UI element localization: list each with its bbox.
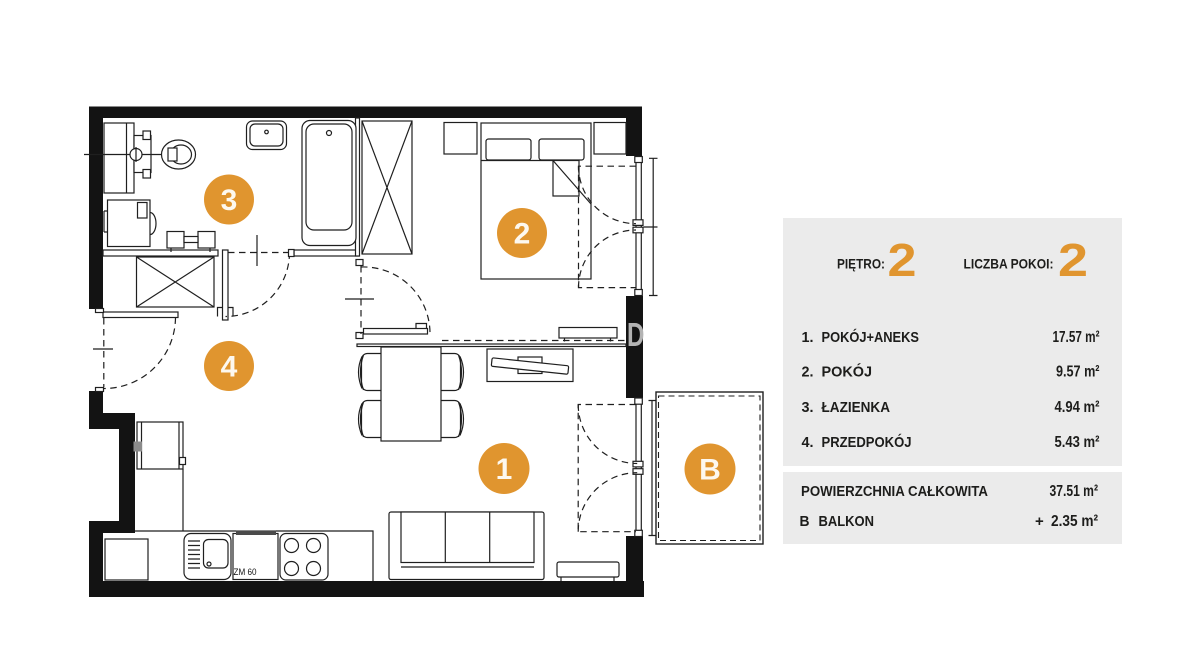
svg-text:PRZEDPOKÓJ: PRZEDPOKÓJ bbox=[822, 433, 912, 451]
svg-text:BALKON: BALKON bbox=[819, 513, 875, 530]
svg-text:4: 4 bbox=[221, 351, 238, 384]
svg-text:37.51 m²: 37.51 m² bbox=[1050, 483, 1099, 500]
svg-text:5.43 m²: 5.43 m² bbox=[1055, 434, 1100, 451]
svg-text:2: 2 bbox=[1058, 234, 1088, 286]
svg-text:1.: 1. bbox=[802, 329, 814, 346]
svg-text:2.35 m²: 2.35 m² bbox=[1051, 513, 1098, 530]
svg-text:1: 1 bbox=[496, 453, 513, 486]
svg-text:2: 2 bbox=[514, 218, 531, 251]
svg-text:4.: 4. bbox=[802, 434, 814, 451]
svg-text:3: 3 bbox=[221, 184, 238, 217]
svg-text:PIĘTRO:: PIĘTRO: bbox=[837, 256, 885, 272]
svg-text:ŁAZIENKA: ŁAZIENKA bbox=[822, 399, 891, 416]
svg-text:B: B bbox=[800, 513, 810, 530]
svg-text:+: + bbox=[1035, 513, 1044, 530]
svg-text:POKÓJ: POKÓJ bbox=[822, 363, 873, 381]
svg-text:2: 2 bbox=[888, 234, 917, 286]
svg-text:POKÓJ+ANEKS: POKÓJ+ANEKS bbox=[822, 328, 920, 346]
svg-text:3.: 3. bbox=[802, 399, 814, 416]
svg-text:9.57 m²: 9.57 m² bbox=[1056, 364, 1100, 381]
svg-text:2.: 2. bbox=[802, 364, 814, 381]
svg-text:17.57 m²: 17.57 m² bbox=[1053, 329, 1100, 346]
svg-text:ZM 60: ZM 60 bbox=[234, 567, 257, 578]
svg-text:POWIERZCHNIA CAŁKOWITA: POWIERZCHNIA CAŁKOWITA bbox=[801, 484, 988, 500]
svg-text:B: B bbox=[699, 454, 721, 487]
svg-text:D: D bbox=[627, 317, 644, 354]
svg-text:4.94 m²: 4.94 m² bbox=[1055, 399, 1100, 416]
svg-text:LICZBA POKOI:: LICZBA POKOI: bbox=[964, 256, 1054, 272]
